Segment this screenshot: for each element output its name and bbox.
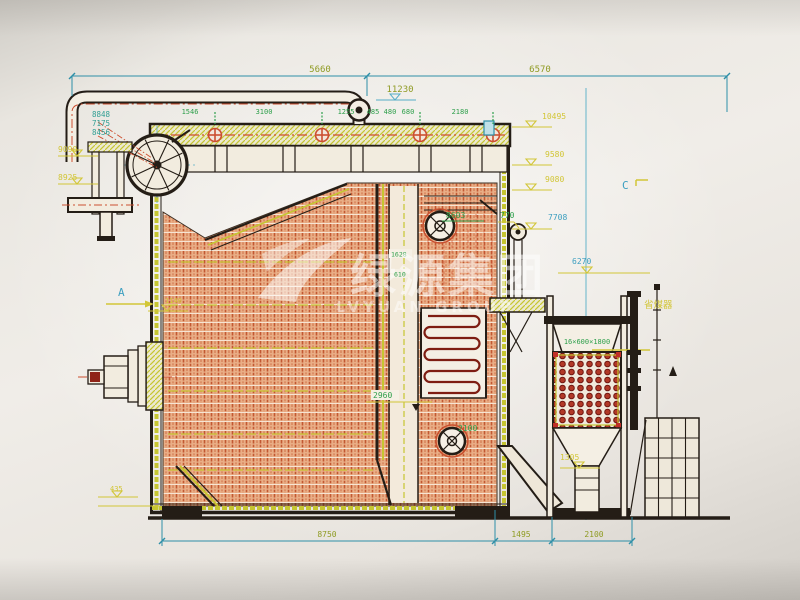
dim-bottom-2100: 2100 <box>584 530 603 539</box>
dim-top-row-5: 480 <box>384 108 397 116</box>
dim-top-span-left: 5660 <box>309 65 331 75</box>
dim-right-level-7708: 7708 <box>548 213 567 222</box>
watermark-company-cn: 绿源集团 <box>350 249 546 303</box>
dim-bottom-8750: 8750 <box>317 530 336 539</box>
dim-top-row-3: 1255 <box>338 108 355 116</box>
section-c-mark-icon <box>636 180 648 186</box>
dim-top-span-right: 6570 <box>529 65 551 75</box>
dim-right-level-6270: 6270 <box>572 257 591 266</box>
dim-right-level-9080: 9080 <box>545 175 564 184</box>
dim-top-row-1: 1546 <box>182 108 199 116</box>
dim-left-stack-2: 7175 <box>92 119 110 128</box>
section-a-arrow-icon <box>106 301 154 308</box>
dim-right-level-10495: 10495 <box>542 112 566 121</box>
dim-manhole-lower: 2100 <box>458 424 477 433</box>
economizer <box>544 291 650 517</box>
dim-top-row-4: 485 <box>367 108 380 116</box>
dim-manhole-upper: 8603 <box>446 211 465 220</box>
dim-top-row-6: 680 <box>402 108 415 116</box>
stair-tower <box>630 284 699 517</box>
photo-of-paper-drawing: 5660 6570 11230 1546 3100 1255 485 480 6… <box>0 0 800 600</box>
dim-top-row-2: 3100 <box>256 108 273 116</box>
economizer-name-label: 省煤器 <box>644 299 673 311</box>
economizer-tube-label: 16×600×1800 <box>564 338 610 346</box>
dim-bottom-1495: 1495 <box>511 530 530 539</box>
dim-right-level-9580: 9580 <box>545 150 564 159</box>
serpentine-coil <box>421 308 486 398</box>
dim-left-level-8925: 8925 <box>58 173 77 182</box>
dim-left-level-9090: 9090 <box>58 145 77 154</box>
dim-left-435: 435 <box>110 485 123 493</box>
boiler-side-elevation-drawing: 5660 6570 11230 1546 3100 1255 485 480 6… <box>0 0 800 600</box>
dim-left-1140: 1140 <box>165 297 182 305</box>
top-header <box>150 112 510 172</box>
dim-top-row-7: 2180 <box>452 108 469 116</box>
dim-pipe-770: 770 <box>500 211 515 220</box>
dim-width-2960: 2960 <box>373 391 392 400</box>
dim-top-level: 11230 <box>386 85 413 95</box>
level-triangle-icon <box>669 366 677 376</box>
dim-right-level-1305: 1305 <box>560 453 579 462</box>
dim-left-stack-1: 8848 <box>92 110 111 119</box>
dim-left-stack-3: 8456 <box>92 128 111 137</box>
riser-pipe <box>630 296 638 430</box>
steam-drum <box>98 122 198 206</box>
section-c-label: C <box>622 179 629 192</box>
section-a-label: A <box>118 286 125 299</box>
watermark-company-en: LVYUAN GROUP <box>336 298 515 316</box>
